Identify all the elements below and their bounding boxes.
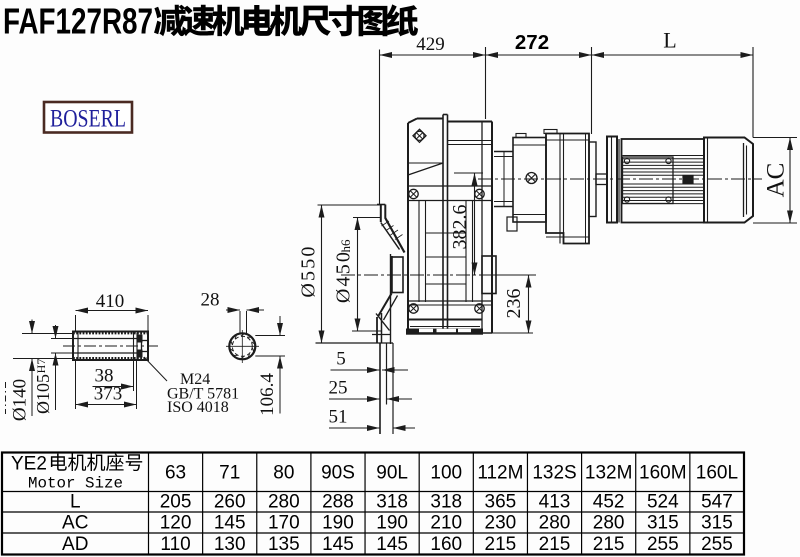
svg-text:71: 71 xyxy=(219,463,240,484)
svg-text:255: 255 xyxy=(647,534,679,555)
svg-text:110: 110 xyxy=(160,534,190,555)
svg-text:160M: 160M xyxy=(639,463,687,484)
svg-text:132M: 132M xyxy=(585,463,633,484)
svg-text:Ø450: Ø450 xyxy=(333,250,355,303)
svg-text:28: 28 xyxy=(201,290,220,311)
svg-text:145: 145 xyxy=(376,534,408,555)
svg-text:210: 210 xyxy=(430,513,462,534)
svg-text:120: 120 xyxy=(160,513,192,534)
svg-text:AC: AC xyxy=(62,513,88,534)
svg-text:AC: AC xyxy=(763,163,790,198)
svg-text:106.4: 106.4 xyxy=(257,373,278,416)
svg-text:Ø105: Ø105 xyxy=(33,374,53,414)
svg-text:190: 190 xyxy=(376,513,408,534)
svg-text:51: 51 xyxy=(329,407,348,428)
svg-text:365: 365 xyxy=(485,492,517,513)
svg-text:AD: AD xyxy=(62,534,88,555)
svg-text:145: 145 xyxy=(322,534,354,555)
svg-text:429: 429 xyxy=(416,34,445,55)
svg-text:FAF127R87: FAF127R87 xyxy=(3,1,153,42)
svg-text:h6: h6 xyxy=(338,239,353,253)
svg-text:H7: H7 xyxy=(34,359,48,374)
svg-text:255: 255 xyxy=(701,534,733,555)
svg-text:280: 280 xyxy=(268,492,300,513)
svg-text:205: 205 xyxy=(160,492,192,513)
svg-text:160: 160 xyxy=(430,534,462,555)
svg-text:318: 318 xyxy=(376,492,408,513)
svg-text:L: L xyxy=(663,28,676,53)
svg-text:100: 100 xyxy=(430,463,462,484)
svg-text:547: 547 xyxy=(701,492,733,513)
svg-text:452: 452 xyxy=(593,492,625,513)
svg-text:410: 410 xyxy=(96,291,125,312)
svg-text:80: 80 xyxy=(273,463,294,484)
svg-text:382.6: 382.6 xyxy=(449,205,471,250)
svg-text:215: 215 xyxy=(485,534,517,555)
svg-text:280: 280 xyxy=(539,513,571,534)
svg-text:524: 524 xyxy=(647,492,679,513)
svg-text:90S: 90S xyxy=(321,463,355,484)
svg-text:5: 5 xyxy=(336,349,346,370)
svg-text:315: 315 xyxy=(647,513,679,534)
svg-text:130: 130 xyxy=(214,534,246,555)
svg-text:288: 288 xyxy=(322,492,354,513)
svg-text:272: 272 xyxy=(515,31,549,54)
svg-text:260: 260 xyxy=(214,492,246,513)
svg-text:63: 63 xyxy=(165,463,186,484)
svg-text:190: 190 xyxy=(322,513,354,534)
svg-text:BOSERL: BOSERL xyxy=(50,106,126,133)
svg-text:280: 280 xyxy=(593,513,625,534)
svg-text:YE2: YE2 xyxy=(11,454,47,475)
svg-text:ISO 4018: ISO 4018 xyxy=(167,399,229,416)
svg-text:230: 230 xyxy=(485,513,517,534)
svg-text:160L: 160L xyxy=(696,463,738,484)
svg-text:90L: 90L xyxy=(376,463,408,484)
svg-text:236: 236 xyxy=(503,289,525,319)
svg-text:L: L xyxy=(70,492,81,513)
svg-text:112M: 112M xyxy=(477,463,523,484)
svg-text:318: 318 xyxy=(430,492,462,513)
svg-text:215: 215 xyxy=(539,534,571,555)
svg-text:315: 315 xyxy=(701,513,733,534)
svg-text:Motor Size: Motor Size xyxy=(28,475,123,493)
svg-text:170: 170 xyxy=(268,513,300,534)
svg-text:145: 145 xyxy=(214,513,246,534)
svg-text:215: 215 xyxy=(593,534,625,555)
svg-text:135: 135 xyxy=(268,534,300,555)
svg-text:25: 25 xyxy=(329,378,348,399)
svg-text:Ø140: Ø140 xyxy=(10,379,31,421)
svg-text:373: 373 xyxy=(94,384,123,405)
svg-text:Ø550: Ø550 xyxy=(298,244,320,297)
svg-text:413: 413 xyxy=(539,492,571,513)
svg-text:132S: 132S xyxy=(532,463,576,484)
